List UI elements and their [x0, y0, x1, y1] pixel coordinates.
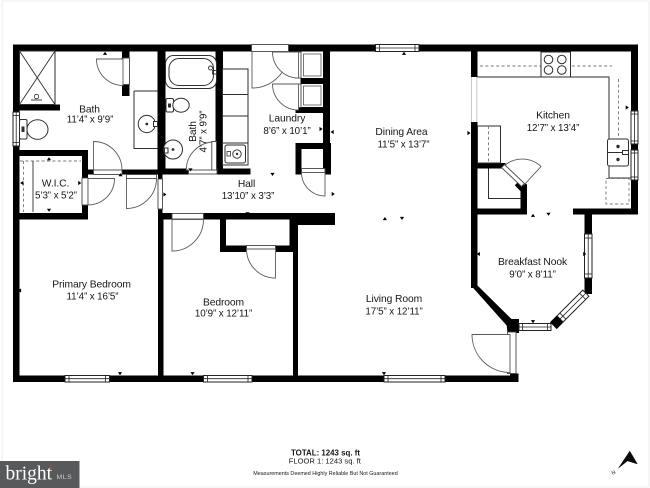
svg-text:5’3” x 5’2”: 5’3” x 5’2”: [35, 191, 77, 202]
svg-text:11’4” x 9’9”: 11’4” x 9’9”: [67, 115, 114, 126]
svg-text:W.I.C.: W.I.C.: [42, 179, 69, 190]
svg-text:12’7” x 13’4”: 12’7” x 13’4”: [527, 123, 580, 134]
svg-text:bright: bright: [6, 464, 53, 485]
svg-text:✧: ✧: [48, 464, 55, 473]
svg-text:Dining Area: Dining Area: [375, 127, 428, 138]
svg-text:13’10” x 3’3”: 13’10” x 3’3”: [222, 191, 275, 202]
svg-text:Living Room: Living Room: [366, 294, 422, 305]
svg-text:Hall: Hall: [238, 179, 255, 190]
svg-text:Bath: Bath: [188, 121, 199, 142]
svg-text:10’9” x 12’11”: 10’9” x 12’11”: [195, 309, 252, 320]
svg-text:Bedroom: Bedroom: [203, 298, 244, 309]
svg-text:17’5” x 12’11”: 17’5” x 12’11”: [365, 307, 422, 318]
svg-text:Breakfast Nook: Breakfast Nook: [498, 257, 568, 268]
svg-text:4’7” x 9’9”: 4’7” x 9’9”: [199, 111, 210, 153]
svg-text:MLS: MLS: [57, 474, 73, 481]
svg-text:11’5” x 13’7”: 11’5” x 13’7”: [378, 140, 430, 151]
svg-text:FLOOR 1: 1243 sq. ft: FLOOR 1: 1243 sq. ft: [289, 457, 362, 466]
svg-text:Primary Bedroom: Primary Bedroom: [52, 280, 131, 291]
svg-text:Kitchen: Kitchen: [536, 111, 570, 122]
svg-text:Measurements Deemed Highly Rel: Measurements Deemed Highly Reliable But …: [253, 471, 397, 477]
svg-text:9’0” x 8’11”: 9’0” x 8’11”: [509, 270, 556, 281]
svg-text:8’6” x 10’1”: 8’6” x 10’1”: [263, 126, 310, 137]
svg-text:11’4” x 16’5”: 11’4” x 16’5”: [67, 292, 119, 303]
svg-text:Laundry: Laundry: [269, 114, 306, 125]
